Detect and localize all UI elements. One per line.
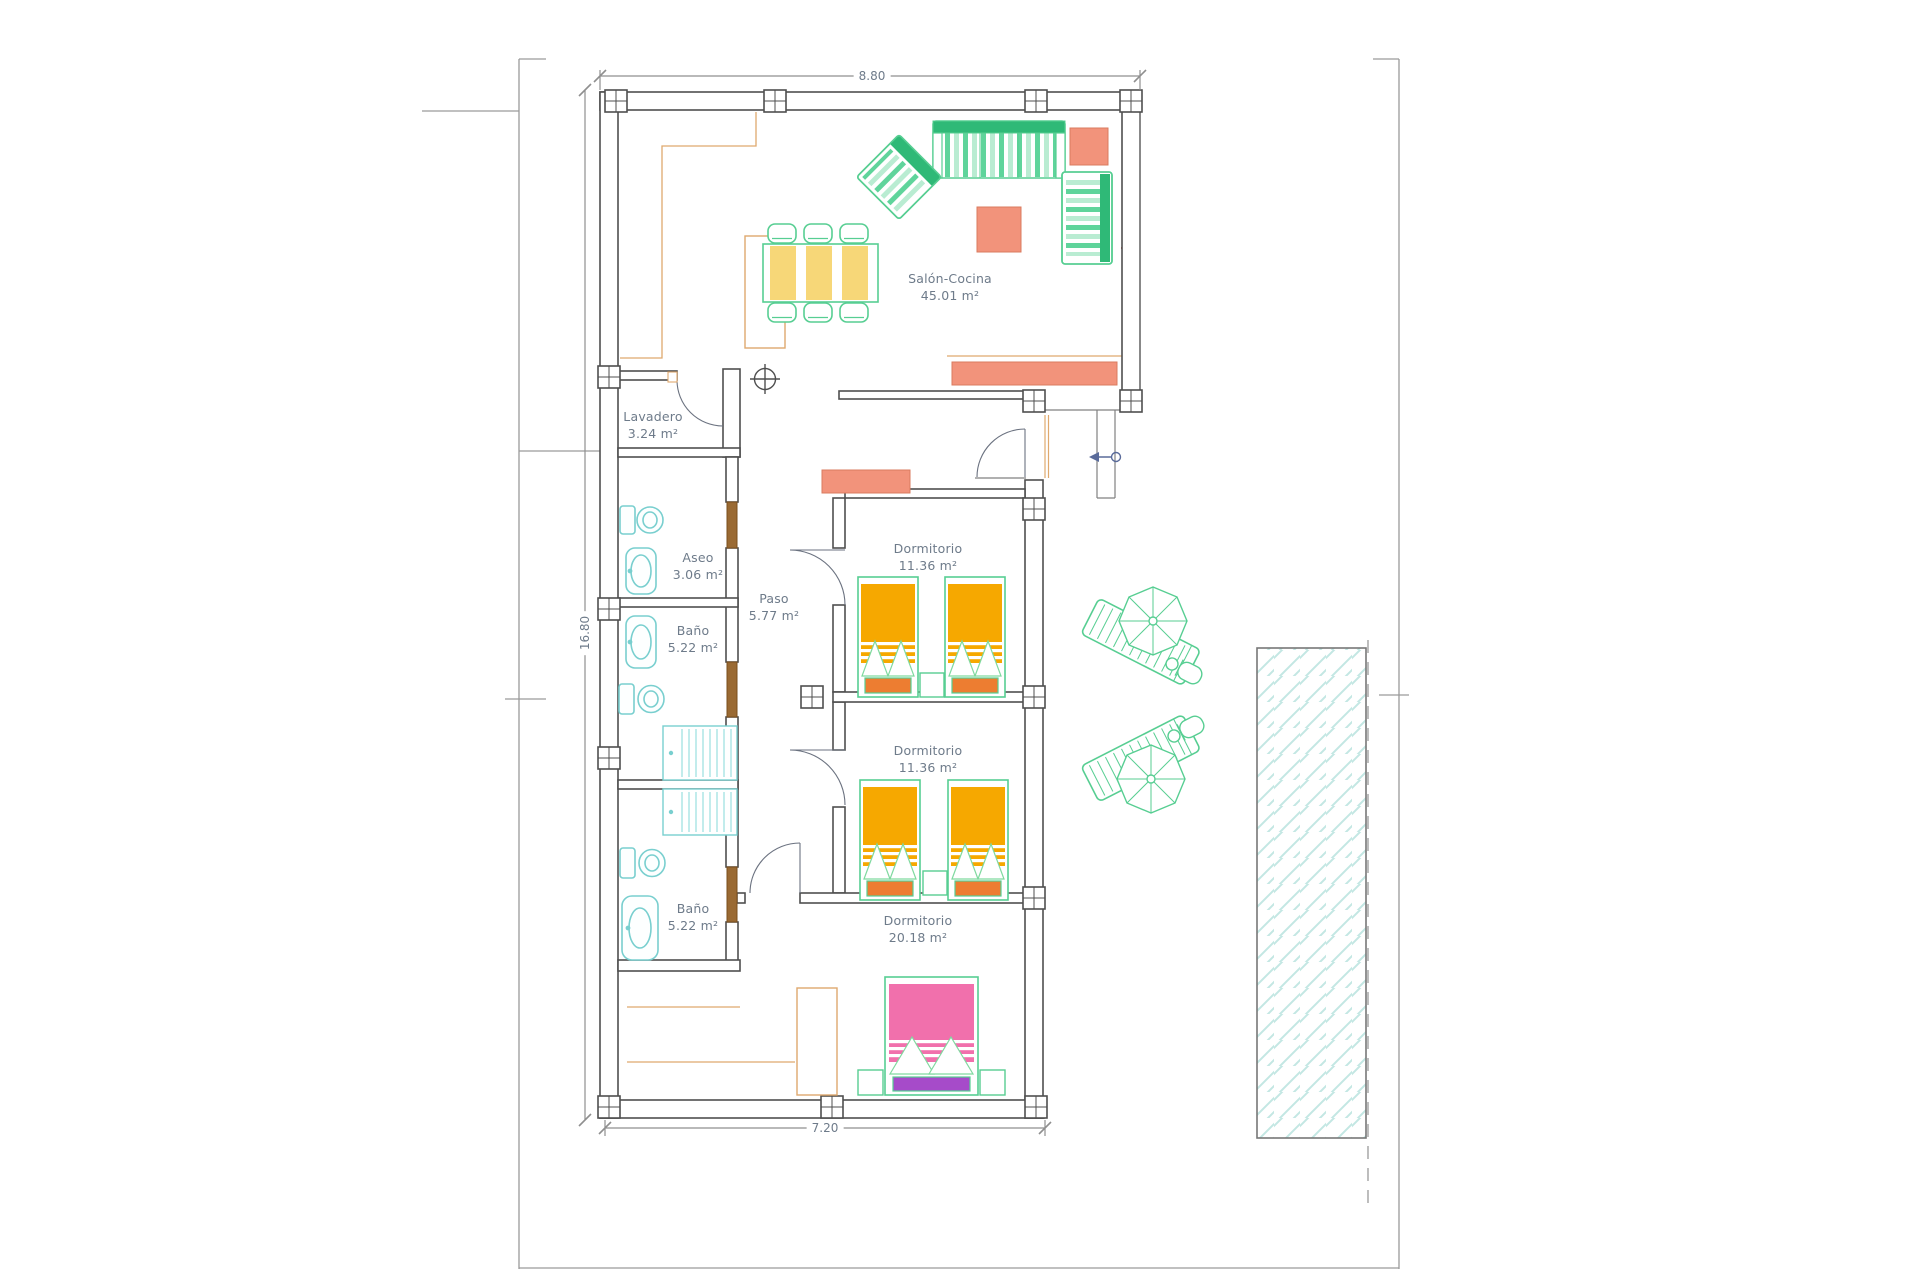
wall-aseo-south — [618, 598, 738, 607]
nightstand — [980, 1070, 1005, 1095]
room-label-dormitorio-3: Dormitorio 20.18 m² — [884, 912, 953, 946]
bed-single — [858, 577, 918, 697]
door-leaf-bano1 — [727, 662, 737, 717]
dimension-text-top: 8.80 — [854, 69, 891, 83]
room-area: 11.36 m² — [894, 759, 963, 776]
floor-plan-canvas: Salón-Cocina 45.01 m² Lavadero 3.24 m² A… — [0, 0, 1920, 1280]
wall-dorms-west-c — [833, 702, 845, 750]
room-label-dormitorio-1: Dormitorio 11.36 m² — [894, 540, 963, 574]
sink-bano2 — [622, 896, 658, 960]
swimming-pool — [1257, 648, 1366, 1138]
outdoor-furniture — [1081, 587, 1207, 813]
parasol — [1117, 745, 1185, 813]
wall-master-north-a — [737, 893, 745, 903]
room-label-lavadero: Lavadero 3.24 m² — [623, 408, 682, 442]
room-label-salon-cocina: Salón-Cocina 45.01 m² — [908, 270, 992, 304]
dining-set — [763, 224, 878, 322]
dining-chair — [840, 303, 868, 322]
entrance-sidelight — [1045, 415, 1049, 478]
toilet-bano1 — [619, 684, 664, 714]
wall-dorms-west-b — [833, 605, 845, 692]
room-name: Dormitorio — [894, 743, 963, 758]
room-area: 5.22 m² — [668, 639, 718, 656]
door-leaf-aseo — [727, 502, 737, 548]
room-area: 3.06 m² — [673, 566, 723, 583]
placemat — [770, 246, 796, 300]
wall-east-lower — [1025, 480, 1043, 1118]
armchair-side — [1062, 172, 1112, 264]
armchair-rotated — [857, 135, 942, 220]
placemat — [806, 246, 832, 300]
floor-plan-drawing — [0, 0, 1920, 1280]
drain-symbol — [750, 364, 780, 394]
dining-chair — [804, 224, 832, 243]
room-name: Dormitorio — [894, 541, 963, 556]
wall-bano2-south — [618, 960, 740, 971]
dining-chair — [768, 224, 796, 243]
bed-double — [885, 977, 978, 1095]
bed-single — [945, 577, 1005, 697]
shower-bano2 — [663, 789, 737, 835]
room-name: Baño — [677, 623, 710, 638]
hall-wardrobe — [822, 470, 910, 493]
room-label-dormitorio-2: Dormitorio 11.36 m² — [894, 742, 963, 776]
coffee-table — [977, 207, 1021, 252]
wall-dorms-west-d — [833, 807, 845, 893]
toilet-bano2 — [620, 848, 665, 878]
room-area: 5.22 m² — [668, 917, 718, 934]
door-dorm2 — [790, 750, 845, 805]
wall-living-south — [839, 391, 1025, 399]
master-wardrobe — [797, 988, 837, 1095]
sink-bano1 — [626, 616, 656, 668]
placemat — [842, 246, 868, 300]
room-label-bano-2: Baño 5.22 m² — [668, 900, 718, 934]
room-area: 45.01 m² — [908, 287, 992, 304]
room-name: Lavadero — [623, 409, 682, 424]
room-label-paso: Paso 5.77 m² — [749, 590, 799, 624]
nightstand — [920, 673, 944, 697]
nightstand — [923, 871, 947, 895]
bed-single — [860, 780, 920, 900]
wall-wet-east-a — [726, 457, 738, 502]
room-name: Baño — [677, 901, 710, 916]
parasol — [1119, 587, 1187, 655]
wall-east-upper — [1122, 92, 1140, 411]
dimension-text-bottom: 7.20 — [807, 1121, 844, 1135]
bed-single — [948, 780, 1008, 900]
wall-wet-east-d — [726, 922, 738, 962]
wall-dorms-west-a — [833, 498, 845, 548]
entrance-arrow — [1089, 452, 1121, 462]
wall-north — [600, 92, 1140, 110]
dimension-left — [579, 84, 591, 1126]
room-name: Salón-Cocina — [908, 271, 992, 286]
wall-lavadero-south — [618, 448, 740, 457]
room-name: Aseo — [682, 550, 713, 565]
master-bedroom-finish-lines — [627, 1007, 795, 1062]
room-area: 3.24 m² — [623, 425, 682, 442]
door-entrance — [977, 429, 1025, 477]
sofa — [933, 121, 1065, 178]
room-name: Dormitorio — [884, 913, 953, 928]
toilet-aseo — [620, 506, 663, 534]
room-label-aseo: Aseo 3.06 m² — [673, 549, 723, 583]
room-name: Paso — [759, 591, 789, 606]
nightstand — [858, 1070, 883, 1095]
room-area: 20.18 m² — [884, 929, 953, 946]
sink-aseo — [626, 548, 656, 594]
dining-chair — [840, 224, 868, 243]
room-area: 11.36 m² — [894, 557, 963, 574]
side-table — [1070, 128, 1108, 165]
dining-chair — [768, 303, 796, 322]
wall-banos-split — [618, 780, 738, 789]
door-master — [750, 843, 800, 893]
wall-lavadero-stub — [723, 369, 740, 457]
room-area: 5.77 m² — [749, 607, 799, 624]
dimension-text-left: 16.80 — [578, 611, 592, 655]
shower-bano1 — [663, 726, 737, 780]
door-leaf-bano2 — [727, 867, 737, 922]
living-room-furniture — [745, 121, 1117, 385]
dining-chair — [804, 303, 832, 322]
kitchen-counter — [952, 362, 1117, 385]
room-label-bano-1: Baño 5.22 m² — [668, 622, 718, 656]
